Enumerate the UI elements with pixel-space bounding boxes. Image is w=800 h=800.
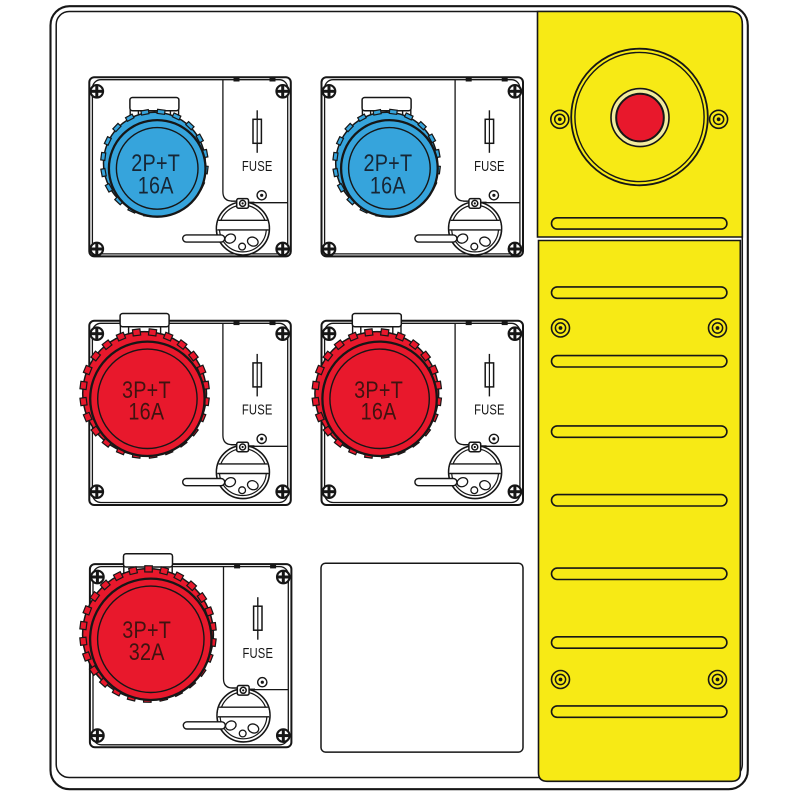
svg-text:FUSE: FUSE: [474, 401, 505, 418]
svg-text:16A: 16A: [138, 172, 174, 199]
svg-text:FUSE: FUSE: [242, 401, 273, 418]
svg-text:16A: 16A: [128, 398, 164, 425]
svg-text:FUSE: FUSE: [242, 158, 273, 175]
svg-text:16A: 16A: [361, 398, 397, 425]
svg-text:FUSE: FUSE: [474, 158, 505, 175]
svg-text:FUSE: FUSE: [243, 644, 274, 661]
svg-text:16A: 16A: [370, 172, 406, 199]
svg-text:32A: 32A: [129, 638, 165, 665]
